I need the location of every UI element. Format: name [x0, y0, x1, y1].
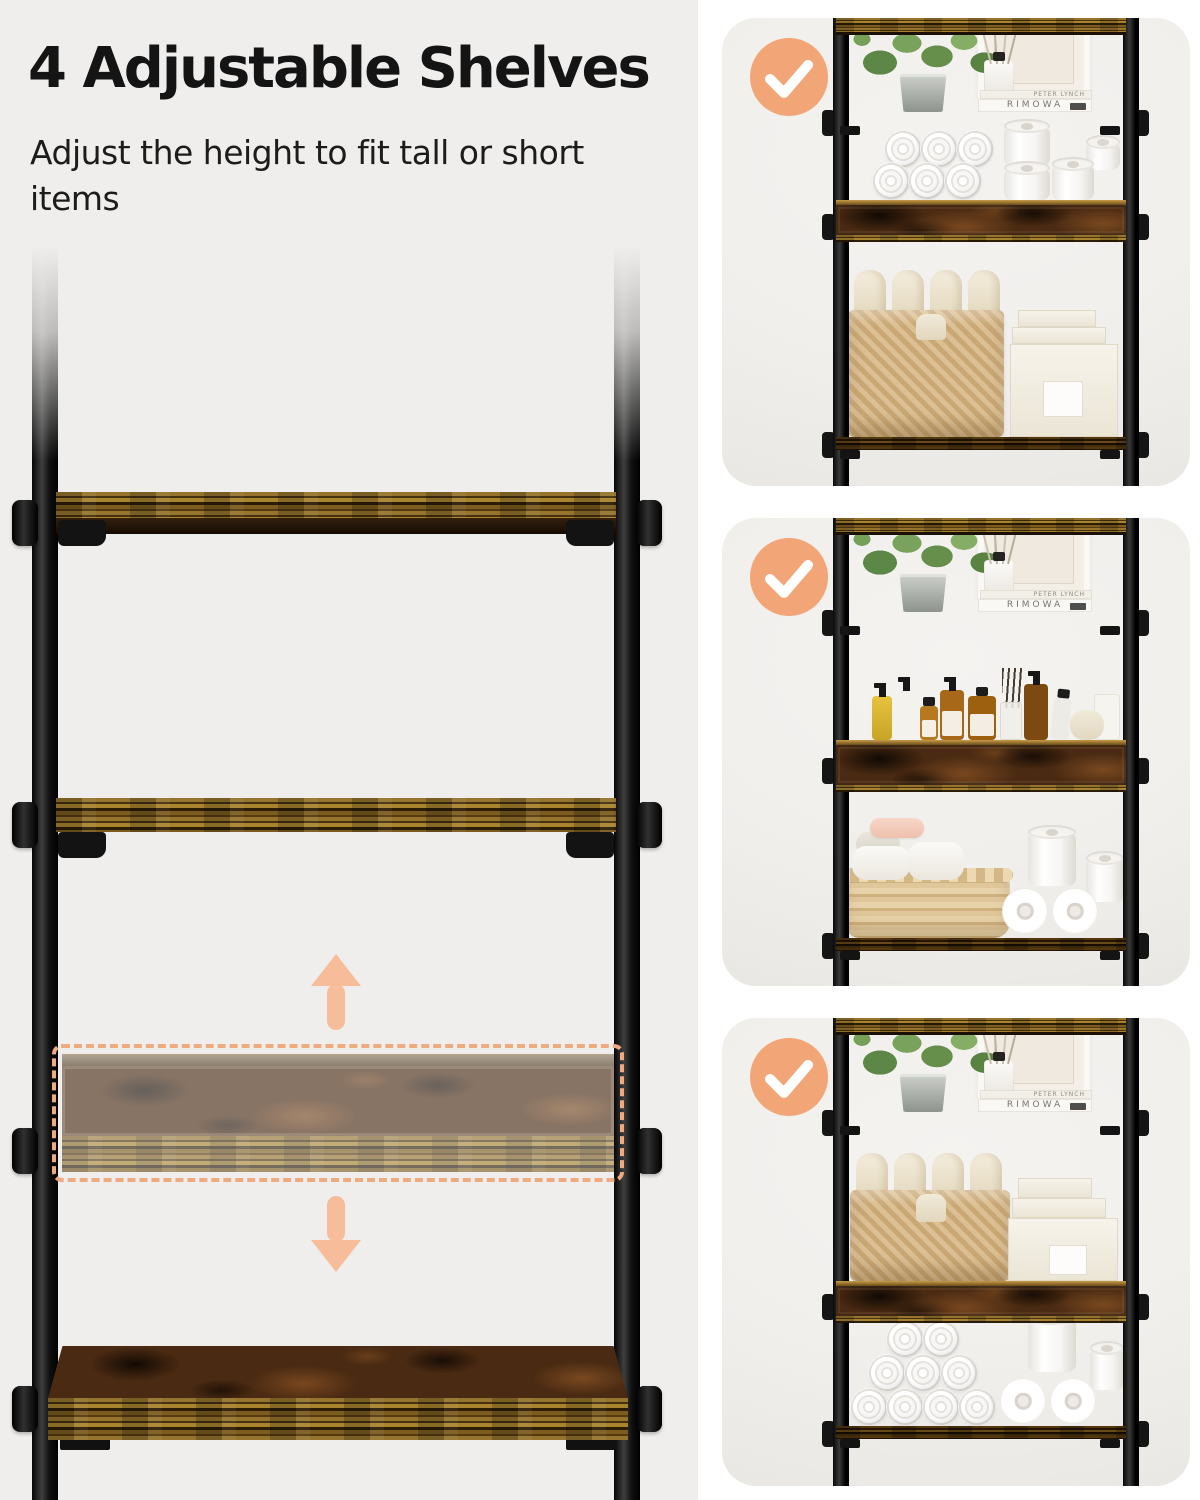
bottle-pump [1033, 671, 1040, 685]
toilet-paper-roll [1004, 168, 1050, 200]
bottle-label [922, 720, 936, 737]
bottle-label [942, 711, 962, 736]
toilet-paper-roll [1052, 888, 1098, 934]
plant-pot [898, 574, 948, 612]
toiletry-bottle [872, 696, 892, 740]
toilet-paper-roll [1050, 1378, 1096, 1424]
book-spine-bottom: RIMOWA [978, 99, 1092, 112]
storage-box [1010, 344, 1118, 437]
book-label [1070, 103, 1086, 110]
book-spine-bottom: RIMOWA [978, 1099, 1092, 1112]
book-label [1070, 603, 1086, 610]
shelf-bracket [840, 450, 860, 459]
bottle-cap [923, 697, 935, 706]
shelf-bracket [58, 832, 106, 858]
shelf-bracket [840, 626, 860, 635]
up-arrow-icon [311, 954, 361, 986]
down-arrow-icon [311, 1240, 361, 1272]
shelf-bracket [1100, 951, 1120, 960]
toiletry-bottle [968, 696, 996, 740]
loofah-towel [1070, 710, 1104, 740]
bottle-pump [949, 677, 956, 691]
tray-base [836, 785, 1126, 792]
shelf-bracket [58, 520, 106, 546]
diffuser-cap [993, 552, 1005, 561]
rolled-towel [886, 1320, 924, 1358]
rolled-towel [958, 1388, 996, 1426]
rolled-towel [872, 162, 910, 200]
book-spine-top: PETER LYNCH [980, 90, 1092, 99]
wood-shelf-4-edge [48, 1398, 628, 1440]
wood-shelf-top [836, 1018, 1126, 1032]
storage-box [1008, 1218, 1118, 1281]
rolled-towel [868, 1354, 906, 1392]
rolled-towel [850, 1388, 888, 1426]
storage-box-lid [1018, 310, 1096, 327]
book-spine-top: PETER LYNCH [980, 1090, 1092, 1099]
tray-front [836, 205, 1126, 235]
bottle-pump [879, 683, 886, 697]
soap-bar [870, 818, 924, 838]
down-arrow-stem [327, 1196, 345, 1242]
shelf-bracket [566, 520, 614, 546]
diffuser-cap [993, 52, 1005, 61]
pole-right [614, 246, 640, 1500]
book-author-text: PETER LYNCH [981, 91, 1085, 98]
rolled-towel [922, 1388, 960, 1426]
toiletry-bottle [940, 690, 964, 740]
box-label [1049, 1245, 1087, 1275]
shelf-bracket [1100, 626, 1120, 635]
toilet-paper-roll [1004, 126, 1050, 166]
pole-left [833, 1018, 849, 1486]
toilet-paper-roll [1090, 1348, 1124, 1390]
wood-shelf-2-edge [56, 798, 616, 832]
shelf-bracket [1100, 126, 1120, 135]
tray-base [836, 235, 1126, 242]
pole-clamp [636, 802, 662, 848]
folded-towel [916, 314, 946, 340]
shelf-option-panel-3: PETER LYNCH RIMOWA [722, 1018, 1190, 1486]
pole-clamp [12, 802, 38, 848]
folded-towel [852, 846, 910, 880]
pole-clamp [636, 1386, 662, 1432]
pole-right [1123, 18, 1139, 486]
wood-shelf-top [836, 518, 1126, 532]
wood-tray-shelf [836, 740, 1126, 792]
shelf-option-panel-1: PETER LYNCH RIMOWA [722, 18, 1190, 486]
pole-clamp [636, 1128, 662, 1174]
subheadline: Adjust the height to fit tall or short i… [30, 130, 590, 222]
wood-shelf-1-edge [56, 492, 616, 518]
toiletry-tube [1050, 697, 1072, 741]
bottle-label [970, 714, 994, 736]
wood-shelf-bottom [836, 938, 1126, 951]
pole-clamp [12, 500, 38, 546]
wicker-basket [844, 874, 1010, 938]
wood-tray-shelf [836, 1281, 1126, 1323]
book-label [1070, 1103, 1086, 1110]
bottle-cap [976, 687, 988, 696]
rolled-towel [940, 1354, 978, 1392]
tube-nozzle [1057, 689, 1070, 699]
shelf-bracket [1100, 1439, 1120, 1448]
checkmark-icon [750, 538, 828, 616]
toilet-paper-roll [1002, 888, 1048, 934]
book-author-text: PETER LYNCH [981, 591, 1085, 598]
storage-box-lid [1012, 1198, 1106, 1218]
ghost-shelf-tray [62, 1054, 614, 1172]
plant-pot [898, 74, 948, 112]
wood-shelf-4-top [48, 1346, 628, 1398]
toilet-paper-roll [1052, 164, 1094, 200]
pole-clamp [12, 1128, 38, 1174]
shelf-bracket [840, 1126, 860, 1135]
storage-box-lid [1012, 327, 1106, 344]
shelf-option-panel-2: PETER LYNCH RIMOWA [722, 518, 1190, 986]
folded-towel [908, 842, 964, 880]
rolled-towel [908, 162, 946, 200]
rolled-towel [886, 1388, 924, 1426]
storage-box-lid [1018, 1178, 1092, 1198]
tray-front [836, 1286, 1126, 1316]
checkmark-icon [750, 38, 828, 116]
toiletry-bottle [920, 706, 938, 740]
headline: 4 Adjustable Shelves [28, 36, 649, 101]
book-author-text: PETER LYNCH [981, 1091, 1085, 1098]
wood-tray-shelf [836, 200, 1126, 242]
ghost-shelf-base-edge [62, 1136, 614, 1172]
folded-towel [916, 1194, 946, 1222]
shelf-bracket [1100, 450, 1120, 459]
adjustable-shelf-highlight [52, 1044, 624, 1182]
rolled-towel [922, 1320, 960, 1358]
product-infographic: 4 Adjustable Shelves Adjust the height t… [0, 0, 1200, 1500]
wood-shelf-1-underside [56, 518, 616, 534]
tray-front [836, 745, 1126, 785]
book-spine-bottom: RIMOWA [978, 599, 1092, 612]
plant-pot [898, 1074, 948, 1112]
pole-right [1123, 1018, 1139, 1486]
pole-clamp [12, 1386, 38, 1432]
bottle-pump [903, 677, 910, 691]
pole-left [32, 246, 58, 1500]
toiletry-bottle [1024, 684, 1048, 740]
wood-shelf-bottom [836, 1426, 1126, 1439]
shelf-bracket [1100, 1126, 1120, 1135]
checkmark-icon [750, 1038, 828, 1116]
pole-fade-gradient [32, 246, 58, 461]
up-arrow-stem [327, 984, 345, 1030]
box-label [1043, 381, 1083, 417]
shelf-bracket [840, 126, 860, 135]
shelf-bracket [840, 951, 860, 960]
ghost-shelf-top-face [62, 1054, 614, 1066]
toiletry-bottle [896, 690, 916, 740]
toilet-paper-roll [1000, 1378, 1046, 1424]
rolled-towel [904, 1354, 942, 1392]
pole-left [833, 18, 849, 486]
glass-cup [1000, 702, 1022, 740]
tray-base [836, 1316, 1126, 1323]
toilet-paper-roll [1028, 1318, 1076, 1372]
diffuser-cap [993, 1052, 1005, 1061]
wood-shelf-top [836, 18, 1126, 32]
wood-shelf-bottom [836, 437, 1126, 450]
toilet-paper-roll [1028, 832, 1076, 886]
pole-clamp [636, 500, 662, 546]
rolled-towel [944, 162, 982, 200]
shelf-bracket [840, 1439, 860, 1448]
ghost-shelf-front [62, 1066, 614, 1136]
book-spine-top: PETER LYNCH [980, 590, 1092, 599]
shelf-bracket [566, 832, 614, 858]
main-illustration-photo: 4 Adjustable Shelves Adjust the height t… [0, 0, 698, 1500]
pole-fade-gradient [614, 246, 640, 461]
